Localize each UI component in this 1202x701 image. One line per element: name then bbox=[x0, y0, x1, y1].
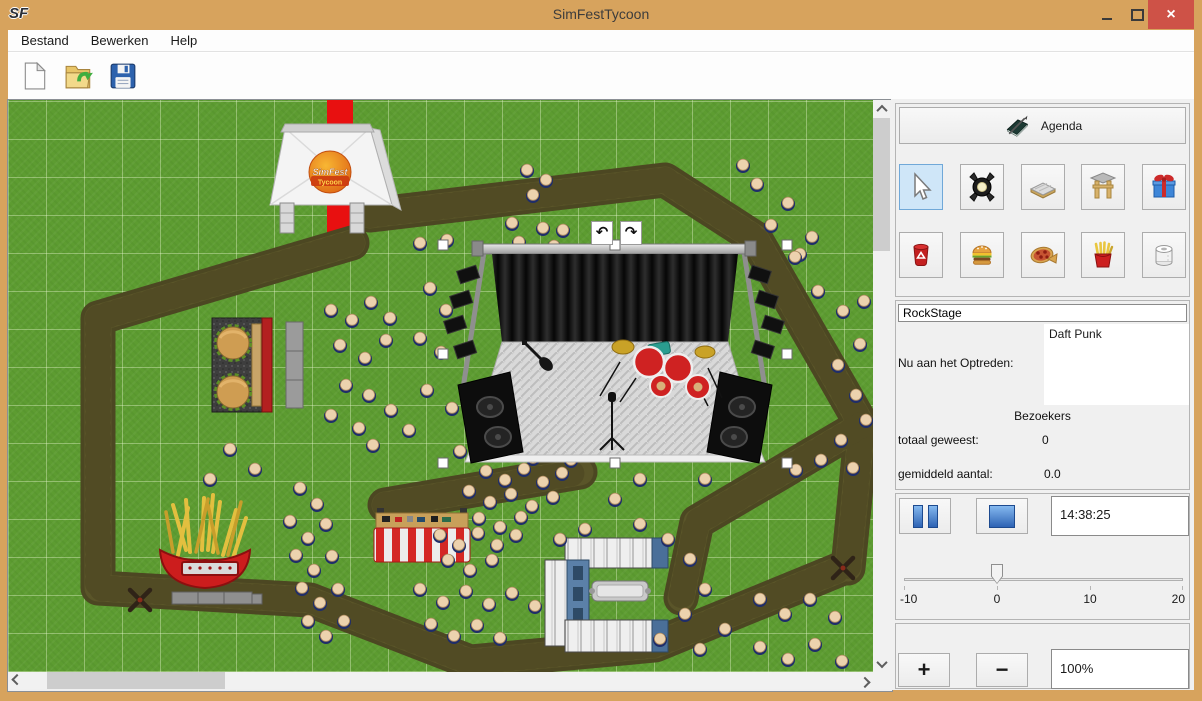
visitor bbox=[362, 389, 376, 403]
visitor bbox=[693, 643, 707, 657]
pause-button[interactable] bbox=[899, 498, 951, 534]
scroll-up-button[interactable] bbox=[873, 100, 890, 117]
now-performing-box: Daft Punk bbox=[1044, 324, 1189, 405]
visitor bbox=[436, 596, 450, 610]
stop-icon bbox=[989, 505, 1015, 528]
time-control-section: 14:38:25 -10 0 10 20 bbox=[895, 493, 1190, 620]
clock-display: 14:38:25 bbox=[1051, 496, 1189, 536]
visitor bbox=[536, 476, 550, 490]
visitor bbox=[379, 334, 393, 348]
visitor bbox=[470, 619, 484, 633]
tool-row-1 bbox=[899, 164, 1186, 210]
visitor bbox=[493, 521, 507, 535]
resize-handle[interactable] bbox=[438, 240, 448, 250]
visitor bbox=[433, 529, 447, 543]
visitor bbox=[653, 633, 667, 647]
visitor bbox=[337, 615, 351, 629]
maximize-icon bbox=[1131, 9, 1144, 21]
visitor bbox=[307, 564, 321, 578]
visitor bbox=[514, 511, 528, 525]
agenda-button[interactable]: Agenda bbox=[899, 107, 1186, 144]
visitor bbox=[498, 474, 512, 488]
visitor bbox=[319, 518, 333, 532]
visitor bbox=[283, 515, 297, 529]
visitor bbox=[490, 539, 504, 553]
zoom-in-button[interactable]: + bbox=[898, 653, 950, 687]
visitor bbox=[413, 583, 427, 597]
visitor bbox=[526, 189, 540, 203]
visitor bbox=[578, 523, 592, 537]
visitor bbox=[333, 339, 347, 353]
visitor bbox=[383, 312, 397, 326]
scrollbar-corner bbox=[873, 672, 890, 689]
visitor bbox=[339, 379, 353, 393]
visitor bbox=[420, 384, 434, 398]
now-performing-label: Nu aan het Optreden: bbox=[898, 356, 1013, 370]
visitor bbox=[698, 473, 712, 487]
scroll-left-button[interactable] bbox=[8, 672, 25, 689]
stage-curtain bbox=[492, 254, 738, 342]
slider-label-10: 10 bbox=[1075, 592, 1105, 606]
visitor bbox=[352, 422, 366, 436]
visitor bbox=[753, 641, 767, 655]
visitor bbox=[678, 608, 692, 622]
visitor bbox=[849, 389, 863, 403]
fries-icon bbox=[1087, 239, 1119, 271]
visitor bbox=[445, 402, 459, 416]
menu-bar: Bestand Bewerken Help bbox=[8, 30, 1194, 52]
close-button[interactable]: × bbox=[1148, 0, 1194, 29]
visitor bbox=[472, 512, 486, 526]
gift-icon bbox=[1148, 171, 1180, 203]
visitor bbox=[808, 638, 822, 652]
visitor bbox=[463, 564, 477, 578]
stage-info-section: Daft Punk Nu aan het Optreden: Bezoekers… bbox=[895, 300, 1190, 490]
visitor bbox=[324, 304, 338, 318]
visitor bbox=[718, 623, 732, 637]
gate-icon bbox=[1087, 171, 1119, 203]
toolbar bbox=[8, 53, 1194, 99]
speed-slider-thumb[interactable] bbox=[991, 564, 1003, 584]
visitor bbox=[661, 533, 675, 547]
stop-button[interactable] bbox=[976, 498, 1028, 534]
pizza-icon bbox=[1027, 239, 1059, 271]
new-file-button[interactable] bbox=[20, 61, 50, 91]
festival-map-canvas[interactable]: SimFest Tycoon bbox=[8, 100, 873, 672]
visitor bbox=[424, 618, 438, 632]
title-bar: SF SimFestTycoon × bbox=[0, 0, 1202, 30]
vertical-scrollbar[interactable] bbox=[873, 100, 890, 672]
visitor bbox=[520, 164, 534, 178]
visitor bbox=[345, 314, 359, 328]
visitors-header: Bezoekers bbox=[896, 409, 1189, 423]
visitor bbox=[546, 491, 560, 505]
visitor bbox=[364, 296, 378, 310]
resize-handle[interactable] bbox=[782, 349, 792, 359]
agenda-label: Agenda bbox=[1041, 119, 1082, 133]
visitor bbox=[295, 582, 309, 596]
toilet-paper-tool-button[interactable] bbox=[1142, 232, 1186, 278]
fries-tool-button[interactable] bbox=[1081, 232, 1125, 278]
average-visitors-value: 0.0 bbox=[1044, 467, 1061, 481]
visitor bbox=[248, 463, 262, 477]
window-title: SimFestTycoon bbox=[0, 6, 1202, 22]
visitor bbox=[556, 224, 570, 238]
visitor bbox=[781, 197, 795, 211]
tool-row-2 bbox=[899, 232, 1186, 278]
visitor bbox=[319, 630, 333, 644]
stage-name-input[interactable] bbox=[898, 304, 1187, 322]
pizza-tool-button[interactable] bbox=[1021, 232, 1065, 278]
visitor bbox=[203, 473, 217, 487]
resize-handle[interactable] bbox=[782, 458, 792, 468]
scroll-right-button[interactable] bbox=[856, 672, 873, 689]
visitor bbox=[313, 597, 327, 611]
visitor bbox=[803, 593, 817, 607]
zoom-out-button[interactable]: − bbox=[976, 653, 1028, 687]
visitor bbox=[402, 424, 416, 438]
cursor-icon bbox=[905, 171, 937, 203]
visitor bbox=[698, 583, 712, 597]
resize-handle[interactable] bbox=[782, 240, 792, 250]
tent-logo-text-2: Tycoon bbox=[318, 180, 342, 187]
visitor bbox=[493, 632, 507, 646]
visitor bbox=[482, 598, 496, 612]
vertical-scroll-thumb[interactable] bbox=[873, 118, 890, 251]
visitor bbox=[834, 434, 848, 448]
visitor bbox=[223, 443, 237, 457]
select-tool-button[interactable] bbox=[899, 164, 943, 210]
spotlight-tool-button[interactable] bbox=[960, 164, 1004, 210]
visitor bbox=[811, 285, 825, 299]
zoom-section: + − 100% bbox=[895, 623, 1190, 689]
save-file-button[interactable] bbox=[108, 61, 138, 91]
visitor bbox=[753, 593, 767, 607]
visitor bbox=[831, 359, 845, 373]
chevron-right-icon bbox=[859, 676, 870, 687]
visitor bbox=[413, 332, 427, 346]
burger-icon bbox=[966, 239, 998, 271]
visitor bbox=[814, 454, 828, 468]
visitor bbox=[423, 282, 437, 296]
trash-bin-icon bbox=[905, 239, 937, 271]
visitor bbox=[462, 485, 476, 499]
speed-slider-track[interactable] bbox=[904, 578, 1183, 581]
visitor bbox=[325, 550, 339, 564]
open-folder-icon bbox=[64, 62, 94, 90]
minimize-icon bbox=[1102, 18, 1112, 20]
visitor bbox=[683, 553, 697, 567]
main-stage[interactable] bbox=[444, 241, 785, 463]
visitor bbox=[471, 527, 485, 541]
agenda-book-icon bbox=[1003, 113, 1031, 139]
horizontal-scrollbar[interactable] bbox=[8, 672, 873, 689]
visitor bbox=[505, 217, 519, 231]
visitor bbox=[788, 251, 802, 265]
visitor bbox=[324, 409, 338, 423]
visitor bbox=[555, 467, 569, 481]
rotate-left-button[interactable]: ↶ bbox=[591, 221, 613, 245]
visitor bbox=[633, 473, 647, 487]
minimize-button[interactable] bbox=[1092, 0, 1122, 29]
menu-help[interactable]: Help bbox=[162, 31, 207, 50]
visitor bbox=[310, 498, 324, 512]
visitor bbox=[857, 295, 871, 309]
scroll-down-button[interactable] bbox=[873, 655, 890, 672]
visitor bbox=[358, 352, 372, 366]
visitor bbox=[525, 500, 539, 514]
horizontal-scroll-thumb[interactable] bbox=[47, 672, 225, 689]
slider-label-minus10: -10 bbox=[900, 592, 917, 606]
gift-tool-button[interactable] bbox=[1142, 164, 1186, 210]
resize-handle[interactable] bbox=[438, 349, 448, 359]
visitor bbox=[505, 587, 519, 601]
chevron-down-icon bbox=[876, 656, 887, 667]
visitor bbox=[293, 482, 307, 496]
tools-section: Agenda bbox=[895, 103, 1190, 297]
visitor bbox=[736, 159, 750, 173]
visitor bbox=[509, 529, 523, 543]
chevron-up-icon bbox=[876, 104, 887, 115]
visitor bbox=[750, 178, 764, 192]
toilet-paper-icon bbox=[1148, 239, 1180, 271]
total-visitors-value: 0 bbox=[1042, 433, 1049, 447]
visitor bbox=[504, 488, 518, 502]
visitor bbox=[608, 493, 622, 507]
now-performing-value: Daft Punk bbox=[1049, 327, 1102, 341]
slider-label-0: 0 bbox=[982, 592, 1012, 606]
festival-scene: SimFest Tycoon bbox=[8, 100, 873, 672]
menu-bestand[interactable]: Bestand bbox=[12, 31, 78, 50]
visitor bbox=[805, 231, 819, 245]
path-tool-button[interactable] bbox=[1021, 164, 1065, 210]
zoom-level-display: 100% bbox=[1051, 649, 1189, 689]
visitor bbox=[539, 174, 553, 188]
visitor bbox=[828, 611, 842, 625]
visitor bbox=[479, 465, 493, 479]
new-file-icon bbox=[22, 62, 48, 90]
visitor bbox=[485, 554, 499, 568]
visitor bbox=[441, 554, 455, 568]
visitor bbox=[846, 462, 860, 476]
menu-bewerken[interactable]: Bewerken bbox=[82, 31, 158, 50]
visitor bbox=[859, 414, 873, 428]
pause-icon bbox=[913, 505, 923, 528]
average-visitors-label: gemiddeld aantal: bbox=[898, 467, 993, 481]
resize-handle[interactable] bbox=[438, 458, 448, 468]
visitor bbox=[633, 518, 647, 532]
open-file-button[interactable] bbox=[64, 61, 94, 91]
visitor bbox=[517, 463, 531, 477]
visitor bbox=[483, 496, 497, 510]
visitor bbox=[536, 222, 550, 236]
visitor bbox=[452, 539, 466, 553]
resize-handle[interactable] bbox=[610, 458, 620, 468]
visitor bbox=[384, 404, 398, 418]
gate-tool-button[interactable] bbox=[1081, 164, 1125, 210]
tent-logo-text-1: SimFest bbox=[312, 167, 348, 177]
visitor bbox=[439, 304, 453, 318]
visitor bbox=[528, 600, 542, 614]
burger-stand[interactable] bbox=[212, 318, 303, 412]
visitor bbox=[553, 533, 567, 547]
toilet-blocks[interactable] bbox=[545, 538, 668, 652]
save-floppy-icon bbox=[109, 62, 137, 90]
path-tile-icon bbox=[1027, 171, 1059, 203]
visitor bbox=[331, 583, 345, 597]
burger-tool-button[interactable] bbox=[960, 232, 1004, 278]
visitor bbox=[835, 655, 849, 669]
visitor bbox=[447, 630, 461, 644]
spotlight-icon bbox=[966, 171, 998, 203]
visitor bbox=[853, 338, 867, 352]
visitor bbox=[366, 439, 380, 453]
visitor bbox=[453, 445, 467, 459]
visitor bbox=[301, 532, 315, 546]
rotate-right-button[interactable]: ↷ bbox=[620, 221, 642, 245]
visitor bbox=[289, 549, 303, 563]
chevron-left-icon bbox=[11, 673, 22, 684]
visitor bbox=[778, 608, 792, 622]
visitor bbox=[301, 615, 315, 629]
slider-label-20: 20 bbox=[1172, 592, 1185, 606]
visitor bbox=[459, 585, 473, 599]
visitor bbox=[413, 237, 427, 251]
visitor bbox=[836, 305, 850, 319]
trash-tool-button[interactable] bbox=[899, 232, 943, 278]
visitor bbox=[781, 653, 795, 667]
market-stall[interactable] bbox=[374, 508, 470, 562]
total-visitors-label: totaal geweest: bbox=[898, 433, 979, 447]
visitor bbox=[764, 219, 778, 233]
